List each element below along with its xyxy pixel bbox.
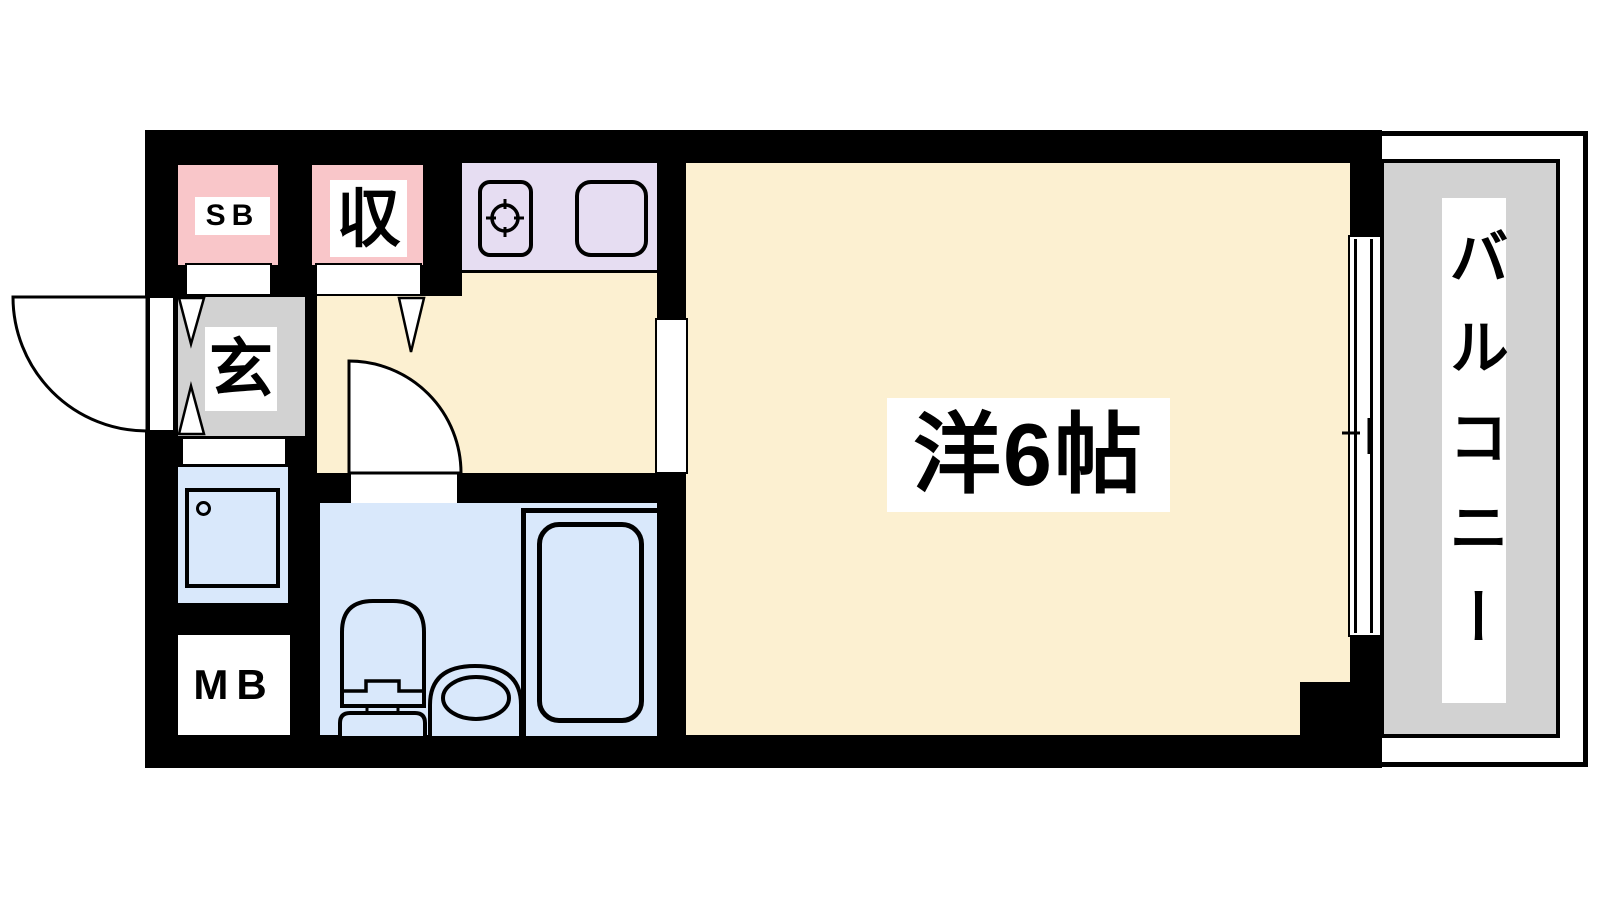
floor-plan: バルコニー 洋6帖 SB 収 玄 MB: [0, 0, 1600, 900]
stove-icon: [478, 180, 533, 257]
window-pane-line: [1354, 239, 1357, 633]
bathroom-doorway: [349, 474, 459, 503]
entrance-door-leaf: [147, 295, 176, 433]
shoe-box-label: SB: [195, 197, 270, 235]
window-pane-line: [1370, 239, 1373, 633]
bathtub-icon: [537, 522, 644, 723]
utility-opening: [181, 437, 287, 466]
main-room-label: 洋6帖: [887, 398, 1170, 512]
hallway-floor: [317, 296, 657, 473]
balcony-label: バルコニー: [1442, 198, 1506, 703]
entrance-label: 玄: [205, 327, 277, 411]
meter-box-label: MB: [178, 635, 290, 735]
washing-machine-drain-icon: [196, 501, 211, 516]
shoe-box-opening: [185, 263, 272, 296]
closet-opening: [315, 263, 422, 296]
entrance-door-swing-arc: [13, 297, 147, 431]
kitchen-floor: [462, 272, 657, 298]
closet-label: 収: [330, 180, 407, 257]
wall-notch: [1300, 682, 1382, 768]
sink-icon: [575, 180, 648, 257]
room-door-opening: [655, 318, 688, 474]
